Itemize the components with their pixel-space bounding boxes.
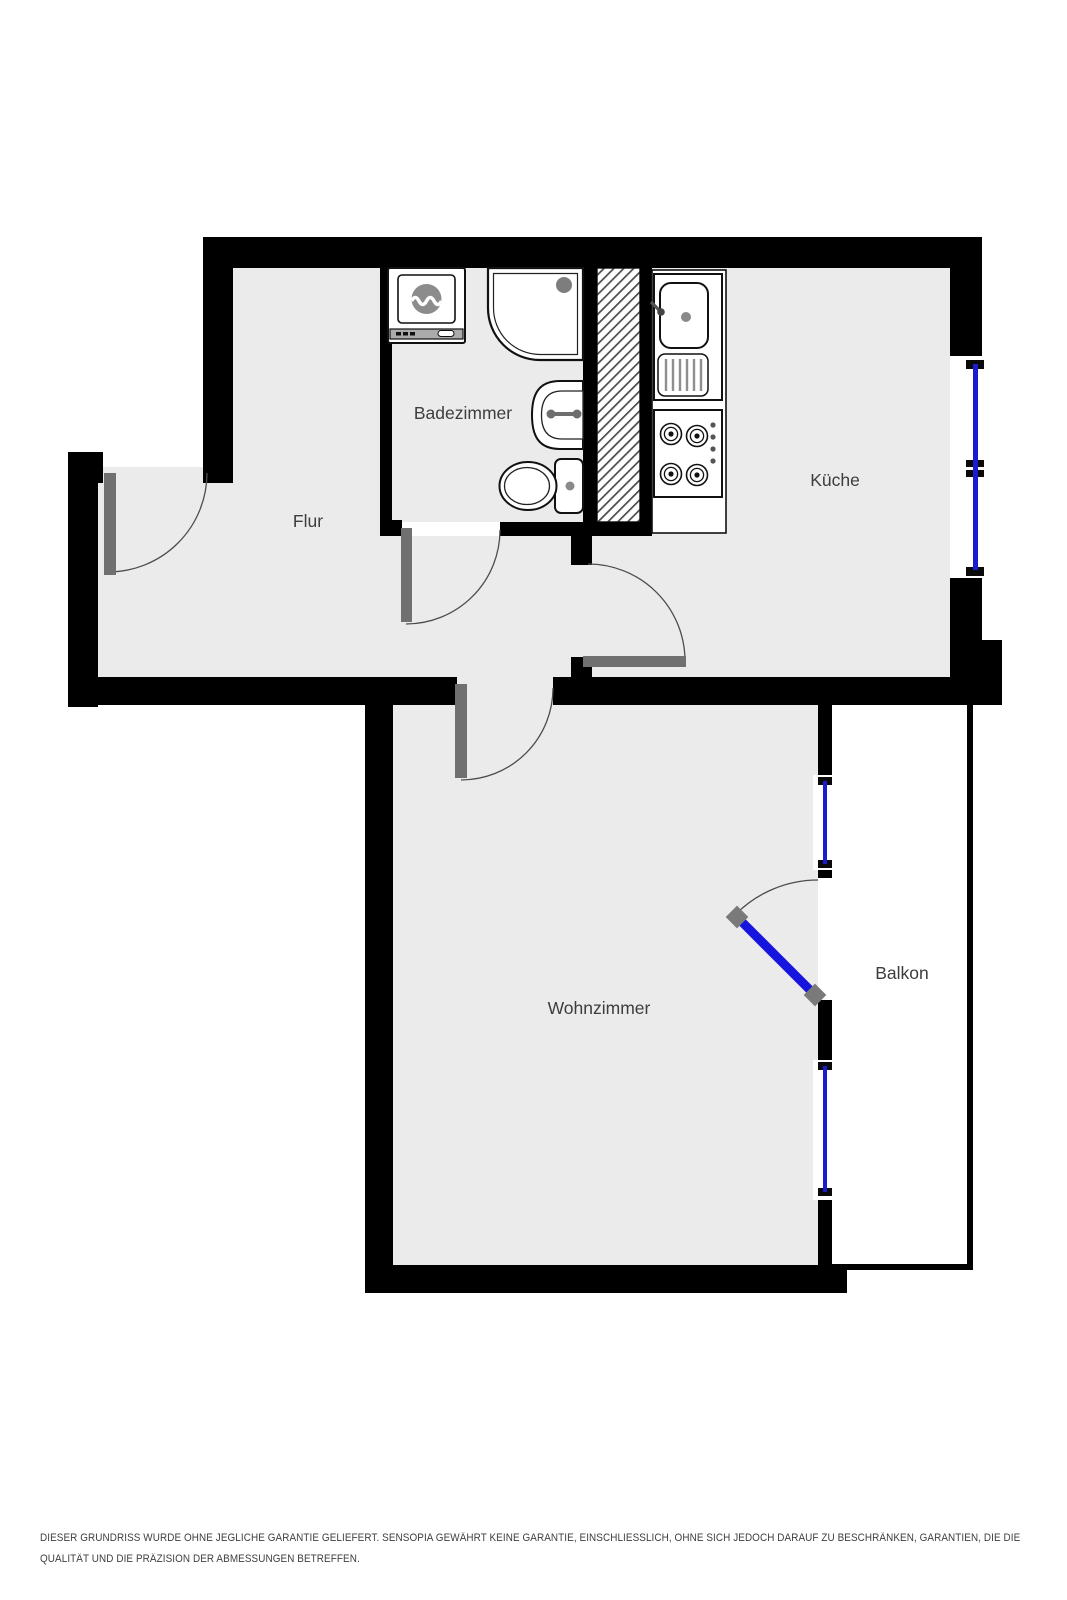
wall-shaft-right: [640, 268, 652, 533]
disclaimer-line-2: QUALITÄT UND DIE PRÄZISION DER ABMESSUNG…: [40, 1549, 1020, 1570]
room-flur-floor-extension: [98, 467, 238, 679]
room-label-flur: Flur: [293, 511, 323, 531]
wall-balkon-a: [818, 705, 832, 777]
balcony-window-lower: [813, 1060, 837, 1200]
bathroom-door-leaf: [401, 528, 412, 622]
wall-badezimmer-right: [583, 268, 597, 522]
balcony-railing-bottom: [832, 1264, 973, 1270]
wall-kueche-bottom: [553, 677, 1002, 705]
wall-wohnzimmer-left: [365, 677, 393, 1293]
disclaimer: DIESER GRUNDRISS WURDE OHNE JEGLICHE GAR…: [40, 1528, 1067, 1570]
wall-balkon-c: [818, 1000, 832, 1062]
floorplan-canvas: Badezimmer Flur Küche Wohnzimmer Balkon …: [0, 0, 1067, 1600]
shower-head: [556, 277, 572, 293]
balcony-window-upper-glass: [823, 781, 827, 864]
wall-main-left: [203, 268, 233, 483]
room-label-badezimmer: Badezimmer: [414, 403, 512, 423]
kitchen-window: [963, 356, 987, 578]
wall-wohnzimmer-bottom: [365, 1265, 847, 1293]
wall-badezimmer-door-jamb: [380, 520, 402, 536]
kitchen-sink: [651, 274, 722, 400]
room-label-kueche: Küche: [810, 470, 860, 490]
balcony-window-lower-glass: [823, 1066, 827, 1192]
living-room-door-leaf: [455, 684, 467, 778]
wall-balkon-d: [818, 1198, 832, 1265]
wall-right-corner-jut: [950, 640, 1002, 705]
wall-extension-left: [68, 452, 98, 707]
wall-right-upper: [950, 268, 982, 356]
balcony-window-upper: [813, 775, 837, 870]
room-label-wohnzimmer: Wohnzimmer: [548, 998, 651, 1018]
toilet: [500, 459, 584, 513]
wall-top: [203, 237, 982, 268]
kitchen-door-leaf: [583, 656, 686, 667]
toilet-bowl: [500, 462, 557, 510]
room-label-balkon: Balkon: [875, 963, 929, 983]
stove: [654, 410, 722, 497]
bathroom-sink: [532, 381, 583, 449]
wall-flur-bottom: [68, 677, 457, 705]
shaft-hatched-area: [597, 268, 640, 522]
entrance-door-leaf: [104, 473, 116, 575]
entrance-threshold: [103, 467, 204, 485]
washing-machine: [388, 268, 465, 343]
floor-plan-drawing: Badezimmer Flur Küche Wohnzimmer Balkon: [0, 0, 1067, 1600]
kitchen-window-glass: [973, 364, 978, 570]
balcony-railing-right: [967, 705, 973, 1270]
disclaimer-line-1: DIESER GRUNDRISS WURDE OHNE JEGLICHE GAR…: [40, 1528, 1020, 1549]
wall-kueche-door-stub-upper: [571, 522, 592, 565]
